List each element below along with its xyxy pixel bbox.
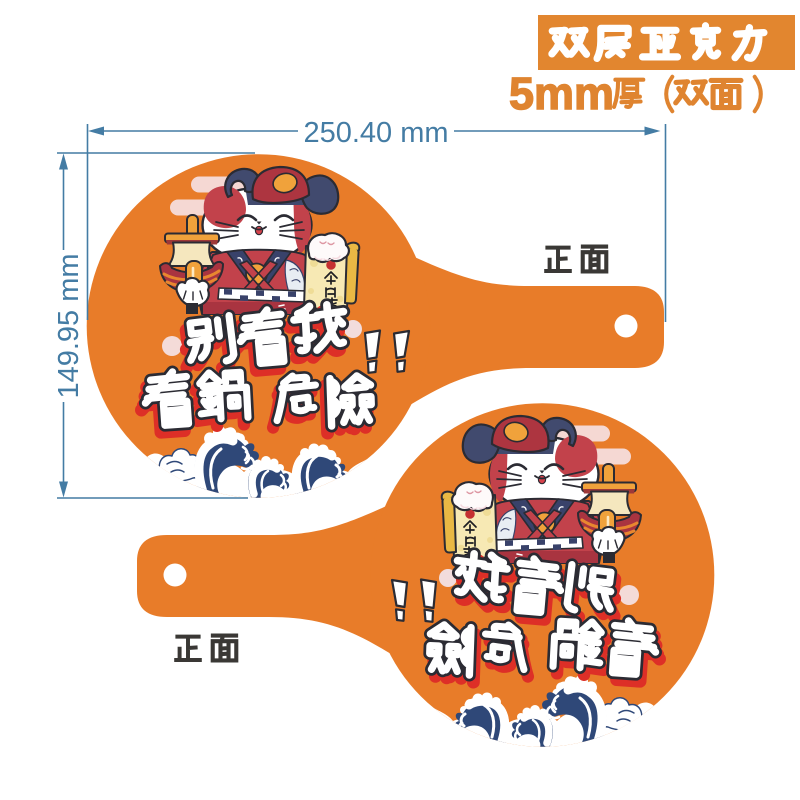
svg-text:149.95 mm: 149.95 mm — [53, 253, 85, 398]
svg-text:5mm: 5mm — [509, 68, 614, 119]
svg-text:250.40 mm: 250.40 mm — [303, 117, 448, 149]
